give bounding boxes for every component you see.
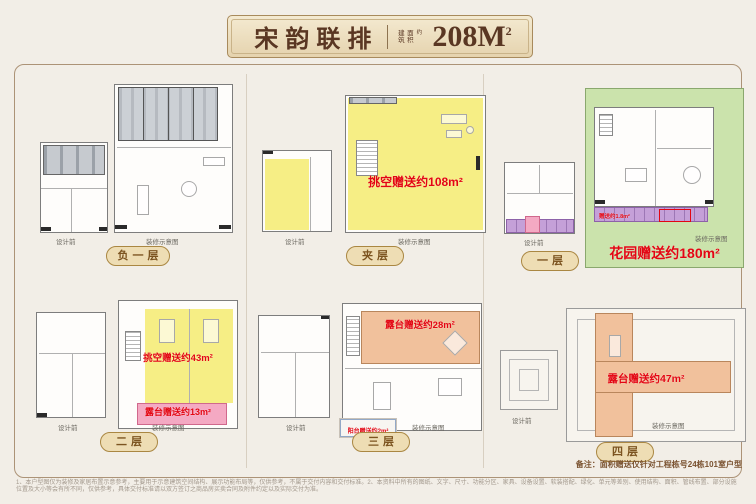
column-separator xyxy=(246,74,247,468)
plan-basement-before xyxy=(40,142,108,233)
furniture-sofa xyxy=(137,185,149,215)
page-title: 宋韵联排 xyxy=(248,19,378,54)
storage-hatch-region xyxy=(43,145,105,175)
plan-mezzanine-before xyxy=(262,150,332,232)
plan-caption-before: 设计前 xyxy=(286,422,306,432)
furniture-sofa xyxy=(441,114,467,124)
stairs xyxy=(599,114,613,136)
veranda-highlight-region: 赠送约1.8m² xyxy=(594,207,708,222)
parking-lockers-region xyxy=(118,87,218,141)
stairs xyxy=(346,316,360,356)
floor-pill-basement: 负一层 xyxy=(106,246,170,266)
balcony-hatch-region xyxy=(349,97,397,104)
plan-caption-before: 设计前 xyxy=(285,236,305,246)
furniture-bed xyxy=(373,382,391,410)
poster-page: 宋韵联排 建筑 面积 约 208M2 设计前 装修示意图 负一层 xyxy=(0,0,756,504)
plan-second-before xyxy=(36,312,106,418)
furniture-bed xyxy=(159,319,175,343)
annotation-fourth-terrace: 露台赠送约47m² xyxy=(586,371,706,386)
annotation-third-terrace: 露台赠送约28m² xyxy=(360,317,480,331)
remark-note: 备注：面积赠送仅针对工程栋号24栋101室户型 xyxy=(576,459,742,470)
floor-pill-third: 三层 xyxy=(352,432,410,452)
legal-disclaimer: 1、本户型图仅为装修及家居布置示意参考，主要用于示意建筑空间结构、展示功能布局等… xyxy=(16,480,742,494)
furniture-table xyxy=(181,181,197,197)
furniture-bed xyxy=(438,378,462,396)
furniture-table xyxy=(446,130,462,138)
furniture-chair xyxy=(466,126,474,134)
veranda-highlight-region xyxy=(506,219,574,233)
floor-pill-second: 二层 xyxy=(100,432,158,452)
annotation-box xyxy=(659,209,691,222)
furniture-bed xyxy=(625,168,647,182)
title-plaque: 宋韵联排 建筑 面积 约 208M2 xyxy=(227,15,533,58)
annotation-second-terrace: 露台赠送约13m² xyxy=(118,405,238,418)
plan-caption-after: 装修示意图 xyxy=(652,420,685,430)
roof-ridge xyxy=(519,369,539,391)
annotation-first-gift: 赠送约1.8m² xyxy=(599,212,630,220)
plan-caption-after: 装修示意图 xyxy=(398,236,431,246)
plan-third-before xyxy=(258,315,330,418)
area-value: 208M2 xyxy=(432,22,511,52)
plan-caption-after: 装修示意图 xyxy=(146,236,179,246)
area-prefix-label: 建筑 面积 约 xyxy=(397,30,423,44)
plan-caption-before: 设计前 xyxy=(524,237,544,247)
plan-first-before xyxy=(504,162,575,234)
plan-caption-after: 装修示意图 xyxy=(412,422,445,432)
plan-fourth-before xyxy=(500,350,558,410)
porch-highlight-region xyxy=(525,216,540,233)
furniture-bed xyxy=(203,319,219,343)
plan-caption-after: 装修示意图 xyxy=(695,233,728,243)
floor-pill-mezzanine: 夹层 xyxy=(346,246,404,266)
plan-first-after xyxy=(594,107,714,207)
furniture-planter xyxy=(609,335,621,357)
plan-caption-before: 设计前 xyxy=(56,236,76,246)
plan-mezzanine-after xyxy=(345,95,486,233)
furniture-dining-table xyxy=(683,166,701,184)
plan-caption-after: 装修示意图 xyxy=(152,422,185,432)
plan-basement-after xyxy=(114,84,233,233)
annotation-mezzanine-void: 挑空赠送约108m² xyxy=(345,173,486,190)
furniture-cabinet xyxy=(203,157,225,166)
plan-caption-before: 设计前 xyxy=(512,415,532,425)
furniture-lounge xyxy=(442,330,467,355)
stairs xyxy=(356,140,378,176)
annotation-second-void: 挑空赠送约43m² xyxy=(118,350,238,364)
void-highlight-region xyxy=(265,159,309,230)
annotation-garden: 花园赠送约180m² xyxy=(585,243,744,263)
title-divider xyxy=(387,25,388,49)
plan-caption-before: 设计前 xyxy=(58,422,78,432)
floor-pill-first: 一层 xyxy=(521,251,579,271)
